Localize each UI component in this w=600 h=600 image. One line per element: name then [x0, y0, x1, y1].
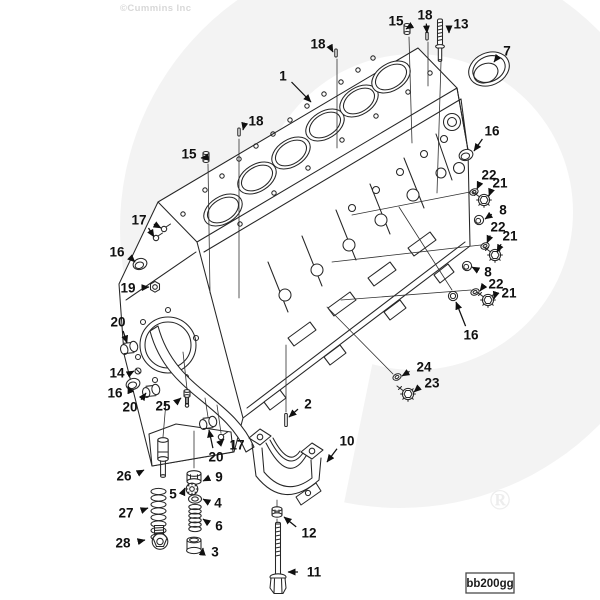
- callout-17-label-14: 17: [131, 213, 146, 228]
- callout-2-label-30: 2: [304, 397, 312, 412]
- callout-26-label-32: 26: [116, 469, 132, 484]
- part-stud-18a: [335, 49, 337, 57]
- callout-3-label-39: 3: [211, 545, 219, 560]
- part-stud-2: [285, 414, 288, 427]
- callout-8-label-11: 8: [499, 203, 507, 218]
- callout-16-label-15: 16: [109, 245, 125, 260]
- callout-14-arrow: [133, 371, 134, 372]
- callout-6-label-37: 6: [215, 519, 223, 534]
- part-stud-18c: [238, 128, 240, 136]
- callout-13-label-4: 13: [453, 17, 469, 32]
- callout-28-label-38: 28: [115, 536, 131, 551]
- callout-15-arrow: [406, 28, 408, 29]
- callout-14-label-24: 14: [109, 366, 125, 381]
- callout-20-label-26: 20: [122, 400, 137, 415]
- callout-21-label-13: 21: [502, 229, 518, 244]
- callout-17-arrow: [223, 439, 224, 440]
- callout-10-label-31: 10: [339, 434, 354, 449]
- callout-16-label-21: 16: [463, 328, 479, 343]
- callout-12-label-40: 12: [301, 526, 316, 541]
- callout-11-label-41: 11: [307, 565, 322, 580]
- part-nut-19: [151, 281, 160, 292]
- callout-20-label-28: 20: [208, 450, 223, 465]
- part-stud-18b: [426, 32, 428, 40]
- part-ring-4: [189, 495, 202, 503]
- callout-18-label-7: 18: [248, 114, 264, 129]
- part-washer-5: [186, 483, 198, 495]
- callout-20-label-20: 20: [110, 315, 125, 330]
- callout-21-arrow: [494, 297, 495, 299]
- watermark-copyright-text: ©Cummins Inc: [120, 3, 191, 14]
- callout-23-label-23: 23: [424, 376, 440, 391]
- parts-diagram-page: ©Cummins Inc ®: [0, 0, 600, 600]
- callout-16-label-25: 16: [107, 386, 123, 401]
- callout-18-label-3: 18: [417, 8, 433, 23]
- callout-15-label-8: 15: [181, 147, 197, 162]
- callout-18-arrow: [243, 128, 244, 131]
- part-cup-3: [187, 537, 202, 554]
- figure-code-text: bb200gg: [466, 578, 513, 590]
- callout-15-label-2: 15: [388, 14, 404, 29]
- part-plug-8a: [474, 215, 483, 224]
- callout-26-arrow: [139, 470, 144, 473]
- callout-16-arrow: [128, 386, 129, 388]
- callout-21-label-19: 21: [501, 286, 517, 301]
- callout-28-arrow: [139, 540, 145, 541]
- figure-code-box: bb200gg: [466, 573, 514, 593]
- callout-24-label-22: 24: [416, 360, 432, 375]
- part-plug-8b: [462, 261, 471, 270]
- callout-25-label-27: 25: [155, 399, 171, 414]
- callout-9-label-33: 9: [215, 470, 223, 485]
- callout-27-label-36: 27: [118, 506, 133, 521]
- part-oring-16d: [448, 291, 457, 300]
- part-screw-14: [135, 368, 141, 374]
- callout-5-label-34: 5: [169, 487, 177, 502]
- callout-7-label-5: 7: [503, 44, 511, 59]
- callout-19-label-16: 19: [120, 281, 135, 296]
- callout-1-label-0: 1: [279, 69, 287, 84]
- callout-4-label-35: 4: [214, 496, 222, 511]
- parts-diagram-canvas: ©Cummins Inc ®: [0, 0, 600, 600]
- registered-trademark-glyph: ®: [489, 484, 511, 516]
- callout-5-arrow: [184, 488, 185, 490]
- callout-17-label-29: 17: [229, 438, 244, 453]
- callout-18-label-1: 18: [310, 37, 326, 52]
- callout-16-label-6: 16: [484, 124, 500, 139]
- callout-18-arrow: [426, 24, 427, 33]
- callout-21-label-10: 21: [492, 176, 508, 191]
